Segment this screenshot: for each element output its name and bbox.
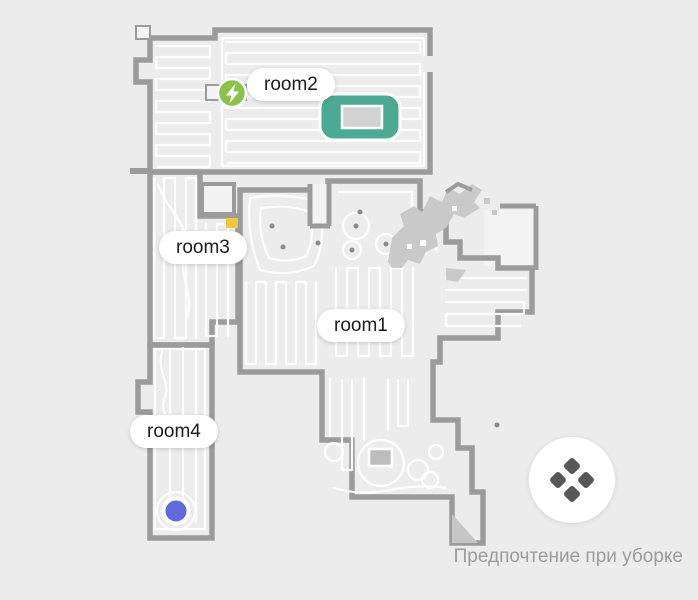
room1-sliver xyxy=(226,218,238,228)
cleaning-preference-icon xyxy=(548,456,596,504)
room-label-room4[interactable]: room4 xyxy=(130,415,218,448)
obstacle-block xyxy=(342,106,382,128)
wall-gap xyxy=(423,56,437,72)
vacuum-map-screen: room2 room3 room1 room4 Предпочтение при… xyxy=(0,0,698,600)
closet-area xyxy=(202,184,234,214)
wall-notch xyxy=(136,26,150,39)
cleaning-preference-button[interactable] xyxy=(529,437,615,523)
robot-position-marker xyxy=(164,499,189,524)
room-label-room2[interactable]: room2 xyxy=(247,68,335,101)
room-label-room3[interactable]: room3 xyxy=(159,231,247,264)
cleaning-preference-caption: Предпочтение при уборке xyxy=(454,546,683,568)
doorway-gap xyxy=(312,184,328,226)
obstacle-block xyxy=(369,449,392,466)
room-label-room1[interactable]: room1 xyxy=(317,309,405,342)
